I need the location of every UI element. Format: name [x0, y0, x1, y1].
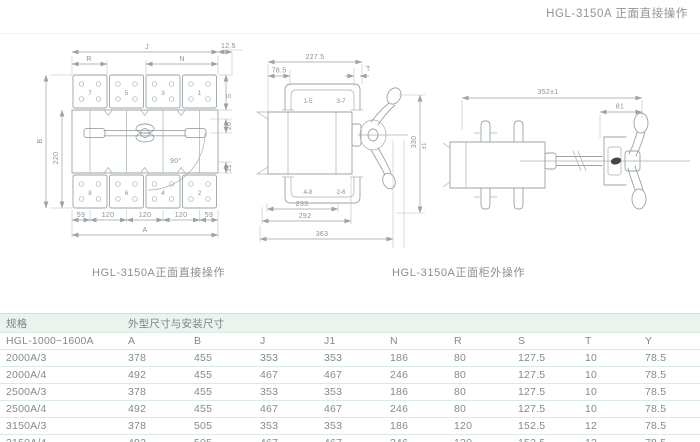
dim-cell: 455: [188, 367, 254, 384]
table-row: 3150A/3 378 505 353 353 186 120 152.5 12…: [0, 418, 700, 435]
spec-cell: 2000A/4: [0, 367, 122, 384]
dim-cell: 353: [254, 350, 318, 367]
dim-cell: 186: [384, 384, 448, 401]
dim-cell: 467: [318, 435, 384, 442]
dim-cell: 246: [384, 435, 448, 442]
table-row: 2000A/3 378 455 353 353 186 80 127.5 10 …: [0, 350, 700, 367]
dim-cell: 353: [254, 384, 318, 401]
dim-label-78-5: 78.5: [272, 68, 287, 75]
pole-label: 3-7: [336, 98, 346, 105]
pole-label: 2-6: [336, 189, 346, 196]
sub-header-cell: HGL-1000~1600A: [0, 333, 122, 350]
dim-cell: 12: [579, 418, 639, 435]
dim-label-B: B: [37, 138, 44, 143]
dim-cell: 492: [122, 435, 188, 442]
dim-label-330: 330: [411, 136, 418, 149]
dim-label-352: 352±1: [538, 89, 559, 96]
dim-label-A: A: [143, 227, 148, 234]
sub-header-cell: T: [579, 333, 639, 350]
dim-cell: 505: [188, 418, 254, 435]
dim-cell: 455: [188, 401, 254, 418]
table-row: 3150A/4 492 505 467 467 246 120 152.5 12…: [0, 435, 700, 442]
dim-cell: 467: [318, 367, 384, 384]
dim-label-R: R: [86, 56, 91, 63]
switch-blade: [84, 124, 206, 142]
external-view-drawing: 352±1 81: [443, 89, 690, 209]
table-sub-header-row: HGL-1000~1600A A B J J1 N R S T Y: [0, 333, 700, 350]
dim-cell: 10: [579, 350, 639, 367]
terminal-blocks-bottom: 8 6 4 2: [73, 175, 217, 208]
sub-header-cell: J1: [318, 333, 384, 350]
dim-label-59: 59: [77, 212, 85, 219]
sub-header-cell: A: [122, 333, 188, 350]
dim-cell: 78.5: [639, 401, 700, 418]
table-group-header-row: 规格 外型尺寸与安装尺寸: [0, 314, 700, 333]
dim-cell: 378: [122, 384, 188, 401]
terminal-number: 6: [125, 190, 129, 197]
dim-cell: 78.5: [639, 435, 700, 442]
dim-cell: 467: [318, 401, 384, 418]
spec-cell: 3150A/4: [0, 435, 122, 442]
terminal-number: 8: [88, 190, 92, 197]
technical-drawings: 7 5 3 1: [0, 0, 700, 300]
front-view-caption: HGL-3150A正面直接操作: [92, 264, 225, 280]
table-row: 2500A/3 378 455 353 353 186 80 127.5 10 …: [0, 384, 700, 401]
dim-label-233: 233: [296, 201, 309, 208]
dim-cell: 120: [448, 418, 512, 435]
terminal-number: 3: [161, 90, 165, 97]
dim-cell: 186: [384, 418, 448, 435]
dim-label-363: 363: [316, 231, 329, 238]
sub-header-cell: S: [512, 333, 579, 350]
dim-cell: 492: [122, 367, 188, 384]
dim-label-26: 26: [226, 122, 233, 130]
dim-cell: 10: [579, 367, 639, 384]
dim-cell: 80: [448, 401, 512, 418]
col-header-dimensions-group: 外型尺寸与安装尺寸: [122, 314, 700, 333]
dim-cell: 78.5: [639, 384, 700, 401]
spec-cell: 3150A/3: [0, 418, 122, 435]
dim-label-12-5: 12.5: [221, 43, 236, 50]
dim-cell: 246: [384, 367, 448, 384]
dim-cell: 353: [318, 418, 384, 435]
dim-cell: 467: [254, 435, 318, 442]
dimension-table: 规格 外型尺寸与安装尺寸 HGL-1000~1600A A B J J1 N R…: [0, 313, 700, 442]
terminal-blocks-top: 7 5 3 1: [73, 75, 217, 108]
terminal-number: 7: [88, 90, 92, 97]
dim-cell: 455: [188, 384, 254, 401]
sub-header-cell: N: [384, 333, 448, 350]
pole-label: 4-8: [303, 189, 313, 196]
dim-cell: 78.5: [639, 367, 700, 384]
dim-cell: 246: [384, 401, 448, 418]
dim-cell: 378: [122, 418, 188, 435]
sub-header-cell: J: [254, 333, 318, 350]
dim-label-J: J: [145, 44, 149, 51]
spec-cell: 2500A/4: [0, 401, 122, 418]
dim-cell: 78.5: [639, 350, 700, 367]
dim-cell: 127.5: [512, 350, 579, 367]
sub-header-cell: Y: [639, 333, 700, 350]
dim-cell: 80: [448, 367, 512, 384]
dim-cell: 127.5: [512, 367, 579, 384]
pole-label: 1-5: [303, 98, 313, 105]
dim-cell: 152.5: [512, 435, 579, 442]
terminal-number: 1: [198, 90, 202, 97]
dim-label-292: 292: [299, 213, 312, 220]
dim-cell: 467: [254, 367, 318, 384]
dim-label-120: 120: [139, 212, 152, 219]
dim-label-81: 81: [616, 104, 624, 111]
dim-cell: 80: [448, 350, 512, 367]
dim-label-11: 11: [226, 164, 233, 172]
dim-label-330-tol: ±1: [421, 142, 428, 149]
dim-cell: 80: [448, 384, 512, 401]
col-header-spec: 规格: [0, 314, 122, 333]
dim-label-T: T: [366, 66, 371, 73]
spec-cell: 2000A/3: [0, 350, 122, 367]
dim-label-angle: 90°: [170, 157, 182, 165]
dim-cell: 10: [579, 401, 639, 418]
dim-cell: 127.5: [512, 401, 579, 418]
dim-cell: 492: [122, 401, 188, 418]
dim-cell: 455: [188, 350, 254, 367]
terminal-number: 5: [125, 90, 129, 97]
dim-cell: 353: [318, 384, 384, 401]
dim-label-120: 120: [175, 212, 188, 219]
dim-label-120: 120: [102, 212, 115, 219]
table-row: 2500A/4 492 455 467 467 246 80 127.5 10 …: [0, 401, 700, 418]
front-view-drawing: 7 5 3 1: [37, 43, 242, 238]
dim-cell: 10: [579, 384, 639, 401]
dim-label-59: 59: [205, 212, 213, 219]
dim-cell: 186: [384, 350, 448, 367]
dim-label-220: 220: [53, 152, 60, 165]
side-view-caption: HGL-3150A正面柜外操作: [392, 264, 525, 280]
dim-cell: 505: [188, 435, 254, 442]
terminal-number: 4: [161, 190, 165, 197]
dim-cell: 353: [254, 418, 318, 435]
dim-label-S: S: [226, 93, 233, 98]
sub-header-cell: B: [188, 333, 254, 350]
dim-cell: 378: [122, 350, 188, 367]
table-row: 2000A/4 492 455 467 467 246 80 127.5 10 …: [0, 367, 700, 384]
side-view-drawing: 1-5 3-7 4-8 2-6: [257, 54, 428, 248]
sub-header-cell: R: [448, 333, 512, 350]
dim-cell: 127.5: [512, 384, 579, 401]
dim-cell: 78.5: [639, 418, 700, 435]
dim-cell: 152.5: [512, 418, 579, 435]
dim-cell: 120: [448, 435, 512, 442]
spec-cell: 2500A/3: [0, 384, 122, 401]
dim-cell: 353: [318, 350, 384, 367]
dim-label-227-5: 227.5: [305, 54, 324, 61]
dim-cell: 12: [579, 435, 639, 442]
terminal-number: 2: [198, 190, 202, 197]
catalog-page: HGL-3150A 正面直接操作: [0, 0, 700, 442]
dim-cell: 467: [254, 401, 318, 418]
dim-label-N: N: [179, 56, 184, 63]
